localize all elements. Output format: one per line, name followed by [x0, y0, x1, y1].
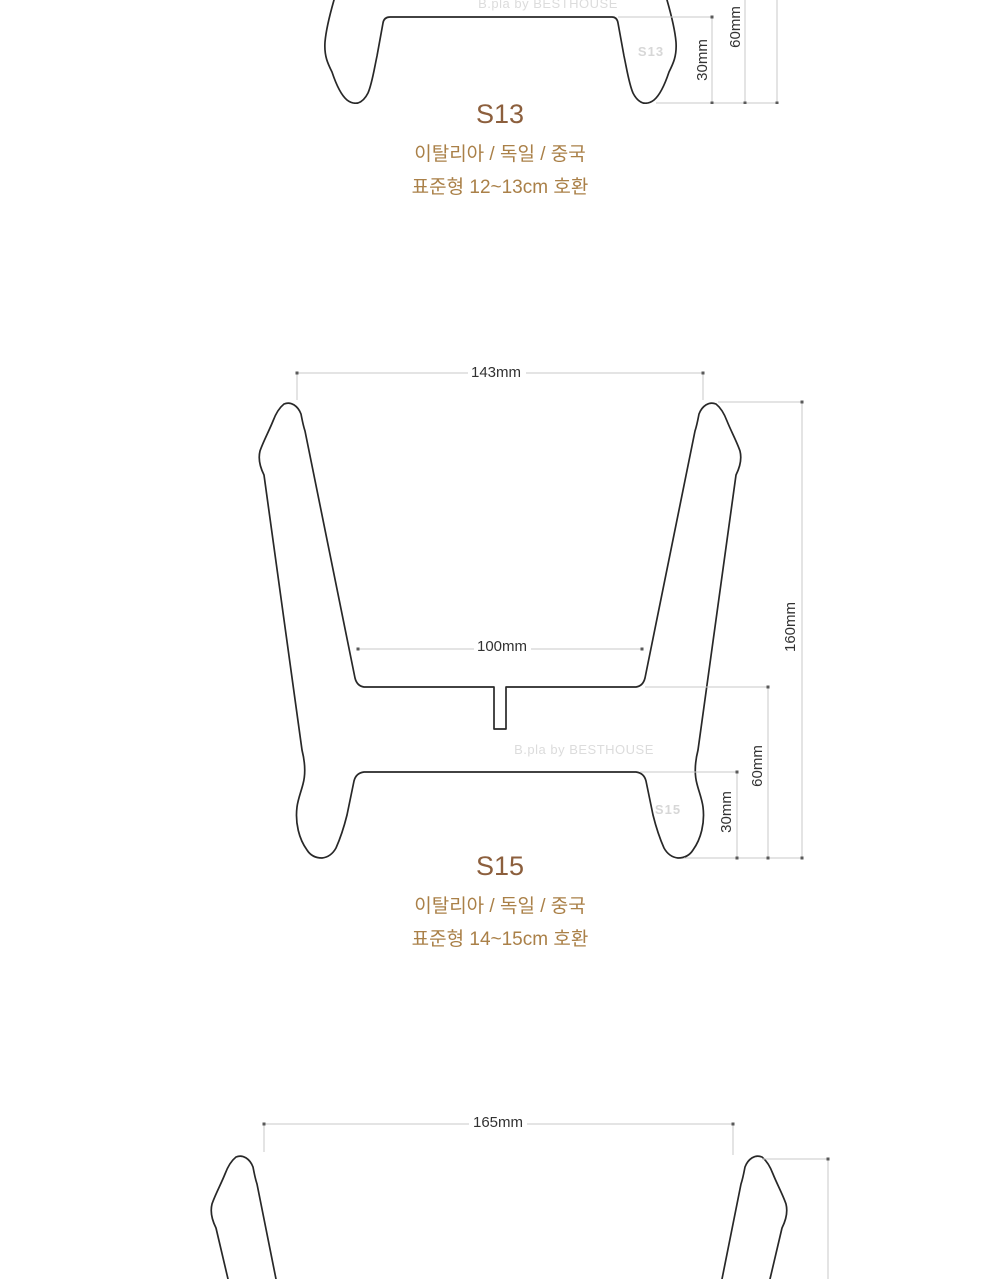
stand-outline-s15 [259, 403, 741, 858]
caption-s15: S15 이탈리아 / 독일 / 중국 표준형 14~15cm 호환 [0, 852, 1000, 951]
compat-text-s15: 표준형 14~15cm 호환 [0, 929, 1000, 951]
model-title-s15: S15 [0, 852, 1000, 881]
stand-outline-s13 [325, 0, 676, 103]
product-spec-image: B.pla by BESTHOUSE S13 30mm 60mm S13 이탈리… [0, 0, 1000, 1279]
origin-text-s13: 이탈리아 / 독일 / 중국 [0, 144, 1000, 166]
bottom-diagram-partial: 165mm [0, 1105, 1000, 1279]
stand-outline-bottom-right-arm [722, 1156, 787, 1279]
dim-label-165mm: 165mm [473, 1114, 523, 1131]
dim-label-60mm-s15: 60mm [749, 745, 766, 787]
dim-label-60mm-s13: 60mm [727, 6, 744, 48]
model-watermark-s15: S15 [655, 802, 681, 817]
compat-text-s13: 표준형 12~13cm 호환 [0, 177, 1000, 199]
brand-watermark: B.pla by BESTHOUSE [514, 742, 654, 757]
dimension-ticks-bottom [263, 1123, 830, 1161]
model-title-s13: S13 [0, 100, 1000, 129]
caption-s13: S13 이탈리아 / 독일 / 중국 표준형 12~13cm 호환 [0, 100, 1000, 199]
dim-label-30mm-s13: 30mm [694, 39, 711, 81]
dim-label-143mm: 143mm [471, 364, 521, 381]
s15-diagram: B.pla by BESTHOUSE S15 [0, 355, 1000, 860]
dim-label-160mm: 160mm [782, 602, 799, 652]
model-watermark-s13: S13 [638, 44, 664, 59]
origin-text-s15: 이탈리아 / 독일 / 중국 [0, 896, 1000, 918]
dim-label-100mm: 100mm [477, 638, 527, 655]
s13-diagram-partial: B.pla by BESTHOUSE S13 30mm 60mm [0, 0, 1000, 104]
stand-outline-bottom-left-arm [211, 1156, 276, 1279]
brand-watermark: B.pla by BESTHOUSE [478, 0, 618, 11]
dim-label-30mm-s15: 30mm [718, 791, 735, 833]
